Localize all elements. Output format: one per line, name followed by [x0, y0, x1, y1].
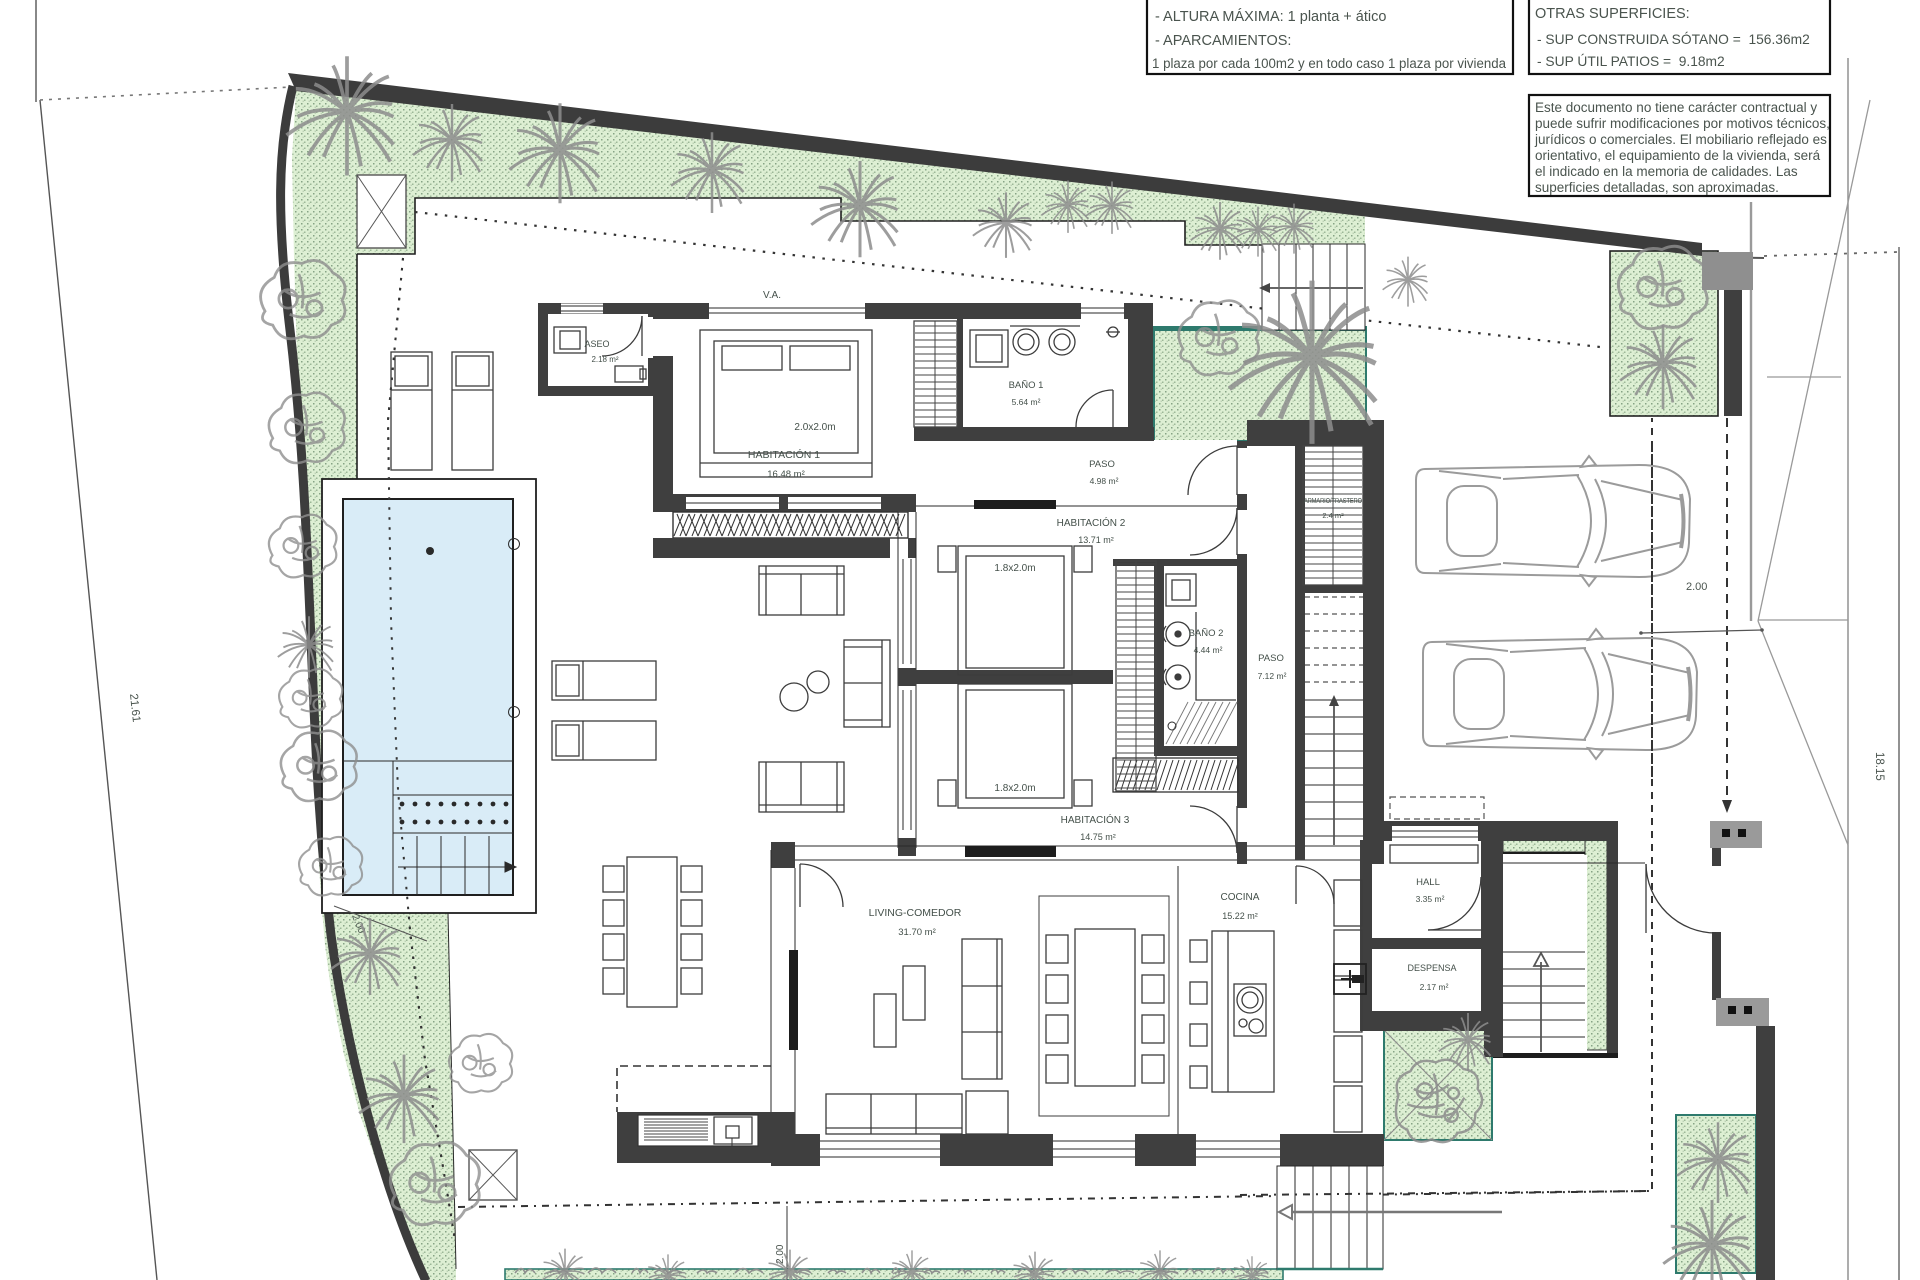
svg-text:2.18 m²: 2.18 m²: [591, 355, 618, 364]
svg-text:1.8x2.0m: 1.8x2.0m: [994, 783, 1035, 794]
svg-text:2.0x2.0m: 2.0x2.0m: [794, 422, 835, 433]
svg-text:4.98 m²: 4.98 m²: [1090, 476, 1119, 486]
svg-text:ASEO: ASEO: [584, 339, 609, 349]
svg-text:Este documento no tiene caráct: Este documento no tiene carácter contrac…: [1535, 100, 1817, 115]
svg-text:HALL: HALL: [1416, 877, 1440, 888]
svg-text:BAÑO 2: BAÑO 2: [1189, 628, 1224, 639]
svg-text:18.15: 18.15: [1873, 752, 1885, 781]
svg-text:4.44 m²: 4.44 m²: [1194, 645, 1223, 655]
svg-text:PASO: PASO: [1089, 459, 1115, 470]
svg-text:COCINA: COCINA: [1221, 892, 1260, 903]
svg-text:- SUP CONSTRUIDA SÓTANO = 156: - SUP CONSTRUIDA SÓTANO = 156.36m2: [1537, 31, 1810, 47]
svg-text:orientativo, el equipamiento d: orientativo, el equipamiento de la vivie…: [1535, 148, 1821, 163]
svg-text:2.4 m²: 2.4 m²: [1322, 511, 1344, 520]
svg-text:2.00: 2.00: [1686, 581, 1707, 593]
svg-text:superficies detalladas, son ap: superficies detalladas, son aproximadas.: [1535, 180, 1779, 195]
svg-text:1 plaza por cada 100m2 y en to: 1 plaza por cada 100m2 y en todo caso 1 …: [1152, 56, 1506, 71]
svg-text:2.17 m²: 2.17 m²: [1420, 982, 1449, 992]
svg-text:13.71 m²: 13.71 m²: [1078, 535, 1114, 545]
svg-text:jurídicos o comerciales. El mo: jurídicos o comerciales. El mobiliario r…: [1534, 132, 1827, 147]
svg-text:BAÑO 1: BAÑO 1: [1009, 380, 1044, 391]
svg-text:3.35 m²: 3.35 m²: [1416, 894, 1445, 904]
svg-text:LIVING-COMEDOR: LIVING-COMEDOR: [869, 907, 962, 919]
svg-text:- SUP ÚTIL PATIOS = 9.18m2: - SUP ÚTIL PATIOS = 9.18m2: [1537, 53, 1725, 69]
svg-text:PASO: PASO: [1258, 653, 1284, 664]
svg-text:14.75 m²: 14.75 m²: [1080, 832, 1116, 842]
svg-text:5.64 m²: 5.64 m²: [1012, 397, 1041, 407]
svg-text:puede sufrir modificaciones po: puede sufrir modificaciones por motivos …: [1535, 116, 1830, 131]
svg-text:HABITACIÓN 3: HABITACIÓN 3: [1061, 813, 1130, 826]
svg-text:HABITACIÓN 1: HABITACIÓN 1: [748, 448, 820, 461]
svg-text:el indicado en la memoria de c: el indicado en la memoria de calidades. …: [1535, 164, 1798, 179]
svg-text:- APARCAMIENTOS:: - APARCAMIENTOS:: [1155, 33, 1291, 49]
svg-text:1.8x2.0m: 1.8x2.0m: [994, 563, 1035, 574]
svg-text:31.70 m²: 31.70 m²: [898, 927, 936, 938]
svg-text:15.22 m²: 15.22 m²: [1222, 911, 1258, 921]
svg-text:DESPENSA: DESPENSA: [1407, 963, 1456, 973]
svg-text:7.12 m²: 7.12 m²: [1258, 671, 1287, 681]
svg-text:- ALTURA MÁXIMA: 1 planta + át: - ALTURA MÁXIMA: 1 planta + ático: [1155, 8, 1386, 25]
svg-text:16.48 m²: 16.48 m²: [767, 469, 805, 480]
svg-text:ARMARIO/TRASTERO: ARMARIO/TRASTERO: [1304, 496, 1362, 505]
svg-text:OTRAS SUPERFICIES:: OTRAS SUPERFICIES:: [1535, 6, 1690, 22]
svg-text:HABITACIÓN 2: HABITACIÓN 2: [1057, 516, 1126, 529]
svg-text:V.A.: V.A.: [763, 290, 781, 301]
